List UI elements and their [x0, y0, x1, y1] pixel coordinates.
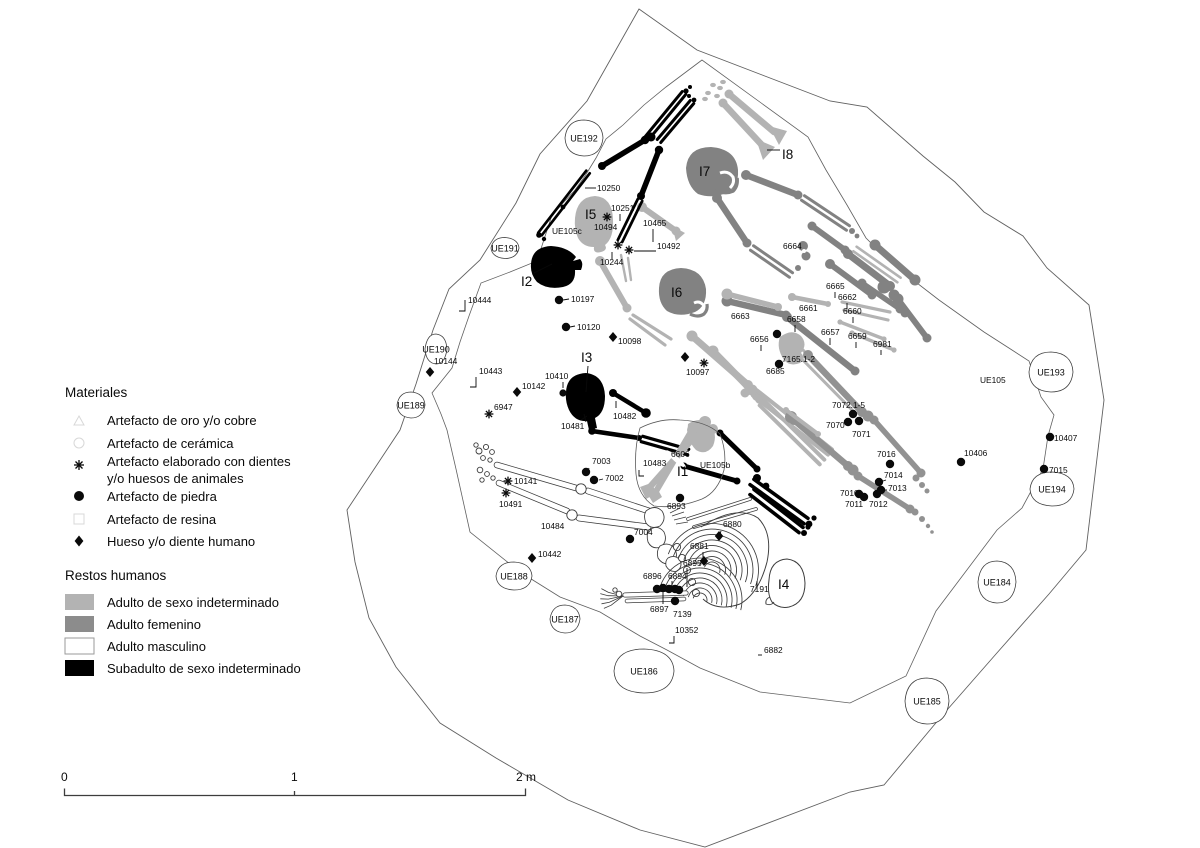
svg-text:6656: 6656: [750, 334, 769, 344]
svg-text:6896: 6896: [643, 571, 662, 581]
svg-text:10251: 10251: [611, 203, 635, 213]
svg-text:10494: 10494: [594, 222, 618, 232]
svg-text:UE186: UE186: [630, 667, 658, 677]
svg-text:10410: 10410: [545, 371, 569, 381]
svg-text:Adulto femenino: Adulto femenino: [107, 617, 201, 632]
svg-text:UE105: UE105: [980, 375, 1006, 385]
svg-text:7002: 7002: [605, 473, 624, 483]
svg-text:UE192: UE192: [570, 134, 598, 144]
svg-text:Hueso y/o diente humano: Hueso y/o diente humano: [107, 534, 255, 549]
svg-text:6661: 6661: [799, 303, 818, 313]
svg-text:6897: 6897: [650, 604, 669, 614]
svg-text:7071: 7071: [852, 429, 871, 439]
svg-text:6657: 6657: [821, 327, 840, 337]
svg-text:UE187: UE187: [551, 615, 579, 625]
svg-text:I1: I1: [677, 464, 688, 479]
svg-text:10120: 10120: [577, 322, 601, 332]
svg-text:0: 0: [61, 770, 68, 784]
svg-text:Artefacto de oro y/o cobre: Artefacto de oro y/o cobre: [107, 413, 257, 428]
svg-text:6880: 6880: [723, 519, 742, 529]
svg-text:10406: 10406: [964, 448, 988, 458]
svg-text:UE193: UE193: [1037, 368, 1065, 378]
svg-text:Artefacto de cerámica: Artefacto de cerámica: [107, 436, 234, 451]
svg-text:7015: 7015: [1049, 465, 1068, 475]
svg-text:UE185: UE185: [913, 697, 941, 707]
svg-text:10444: 10444: [468, 295, 492, 305]
svg-text:I5: I5: [585, 207, 596, 222]
svg-text:7191: 7191: [750, 584, 769, 594]
svg-text:7139: 7139: [673, 609, 692, 619]
svg-text:7012: 7012: [869, 499, 888, 509]
svg-text:6685: 6685: [766, 366, 785, 376]
svg-text:6895: 6895: [683, 558, 702, 568]
svg-text:I4: I4: [778, 577, 790, 592]
svg-text:UE190: UE190: [422, 345, 450, 355]
svg-text:7072.1-5: 7072.1-5: [832, 400, 865, 410]
svg-text:10098: 10098: [618, 336, 642, 346]
svg-text:Artefacto de resina: Artefacto de resina: [107, 512, 217, 527]
svg-text:10465: 10465: [643, 218, 667, 228]
svg-text:UE184: UE184: [983, 578, 1011, 588]
svg-text:UE194: UE194: [1038, 485, 1066, 495]
svg-text:6660: 6660: [843, 306, 862, 316]
svg-text:Restos humanos: Restos humanos: [65, 568, 167, 583]
svg-text:10482: 10482: [613, 411, 637, 421]
svg-text:Artefacto elaborado con diente: Artefacto elaborado con dientes: [107, 454, 291, 469]
svg-text:10097: 10097: [686, 367, 710, 377]
svg-text:UE105b: UE105b: [700, 460, 731, 470]
svg-text:10484: 10484: [541, 521, 565, 531]
svg-text:6664: 6664: [783, 241, 802, 251]
svg-text:6665: 6665: [826, 281, 845, 291]
svg-text:I2: I2: [521, 274, 532, 289]
svg-text:7014: 7014: [884, 470, 903, 480]
svg-text:7010: 7010: [840, 488, 859, 498]
svg-text:10483: 10483: [643, 458, 667, 468]
svg-text:10481: 10481: [561, 421, 585, 431]
svg-text:1: 1: [291, 770, 298, 784]
svg-text:I7: I7: [699, 164, 710, 179]
svg-text:10250: 10250: [597, 183, 621, 193]
svg-text:2 m: 2 m: [516, 770, 536, 784]
svg-text:I8: I8: [782, 147, 793, 162]
svg-text:UE189: UE189: [397, 401, 425, 411]
svg-text:Adulto de sexo indeterminado: Adulto de sexo indeterminado: [107, 595, 279, 610]
svg-text:6893: 6893: [667, 501, 686, 511]
svg-text:y/o huesos de animales: y/o huesos de animales: [107, 471, 244, 486]
svg-text:6881: 6881: [690, 541, 709, 551]
svg-text:6662: 6662: [838, 292, 857, 302]
svg-text:6882: 6882: [764, 645, 783, 655]
svg-text:Subadulto de sexo indeterminad: Subadulto de sexo indeterminado: [107, 661, 301, 676]
svg-text:10491: 10491: [499, 499, 523, 509]
svg-text:10141: 10141: [514, 476, 538, 486]
svg-text:I3: I3: [581, 350, 592, 365]
svg-text:7070: 7070: [826, 420, 845, 430]
svg-text:7004: 7004: [634, 527, 653, 537]
svg-text:I6: I6: [671, 285, 682, 300]
svg-text:6894: 6894: [668, 571, 687, 581]
svg-text:10492: 10492: [657, 241, 681, 251]
svg-text:UE105c: UE105c: [552, 226, 582, 236]
svg-text:6658: 6658: [787, 314, 806, 324]
svg-text:7011: 7011: [845, 499, 863, 509]
svg-text:10442: 10442: [538, 549, 562, 559]
svg-text:6981: 6981: [873, 339, 892, 349]
svg-text:UE188: UE188: [500, 572, 528, 582]
svg-text:10142: 10142: [522, 381, 546, 391]
svg-text:6663: 6663: [731, 311, 750, 321]
svg-text:UE191: UE191: [491, 244, 519, 254]
svg-text:7013: 7013: [888, 483, 907, 493]
svg-text:7003: 7003: [592, 456, 611, 466]
svg-text:Artefacto de piedra: Artefacto de piedra: [107, 489, 218, 504]
svg-text:10352: 10352: [675, 625, 699, 635]
svg-text:Adulto masculino: Adulto masculino: [107, 639, 206, 654]
svg-text:10407: 10407: [1054, 433, 1078, 443]
svg-text:6606: 6606: [671, 449, 690, 459]
svg-text:6947: 6947: [494, 402, 513, 412]
svg-text:10144: 10144: [434, 356, 458, 366]
svg-text:7165.1-2: 7165.1-2: [782, 354, 815, 364]
svg-text:7016: 7016: [877, 449, 896, 459]
svg-text:10197: 10197: [571, 294, 595, 304]
svg-text:10443: 10443: [479, 366, 503, 376]
svg-text:Materiales: Materiales: [65, 385, 128, 400]
svg-text:6659: 6659: [848, 331, 867, 341]
